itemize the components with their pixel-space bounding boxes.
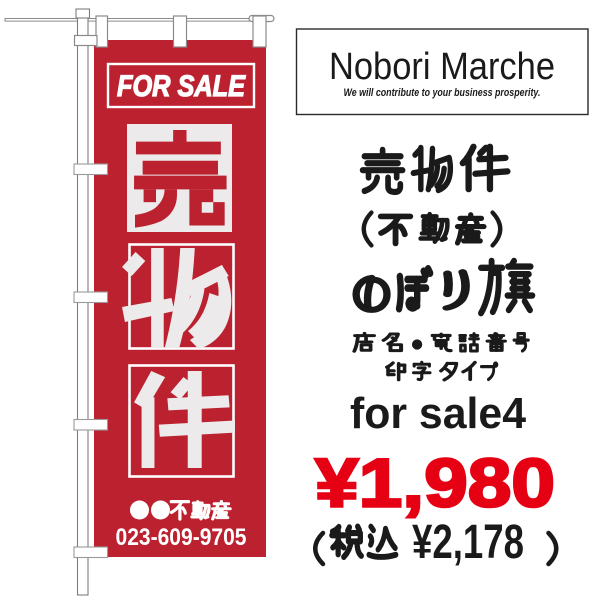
svg-text:FOR SALE: FOR SALE (117, 70, 246, 103)
svg-text:¥1,980: ¥1,980 (315, 445, 555, 522)
svg-text:for sale4: for sale4 (350, 389, 527, 438)
svg-text:023-609-9705: 023-609-9705 (116, 524, 247, 551)
svg-text:We will contribute to your bus: We will contribute to your business pros… (344, 87, 541, 99)
svg-text:Nobori Marche: Nobori Marche (329, 46, 555, 88)
svg-text:¥2,178: ¥2,178 (412, 516, 524, 569)
